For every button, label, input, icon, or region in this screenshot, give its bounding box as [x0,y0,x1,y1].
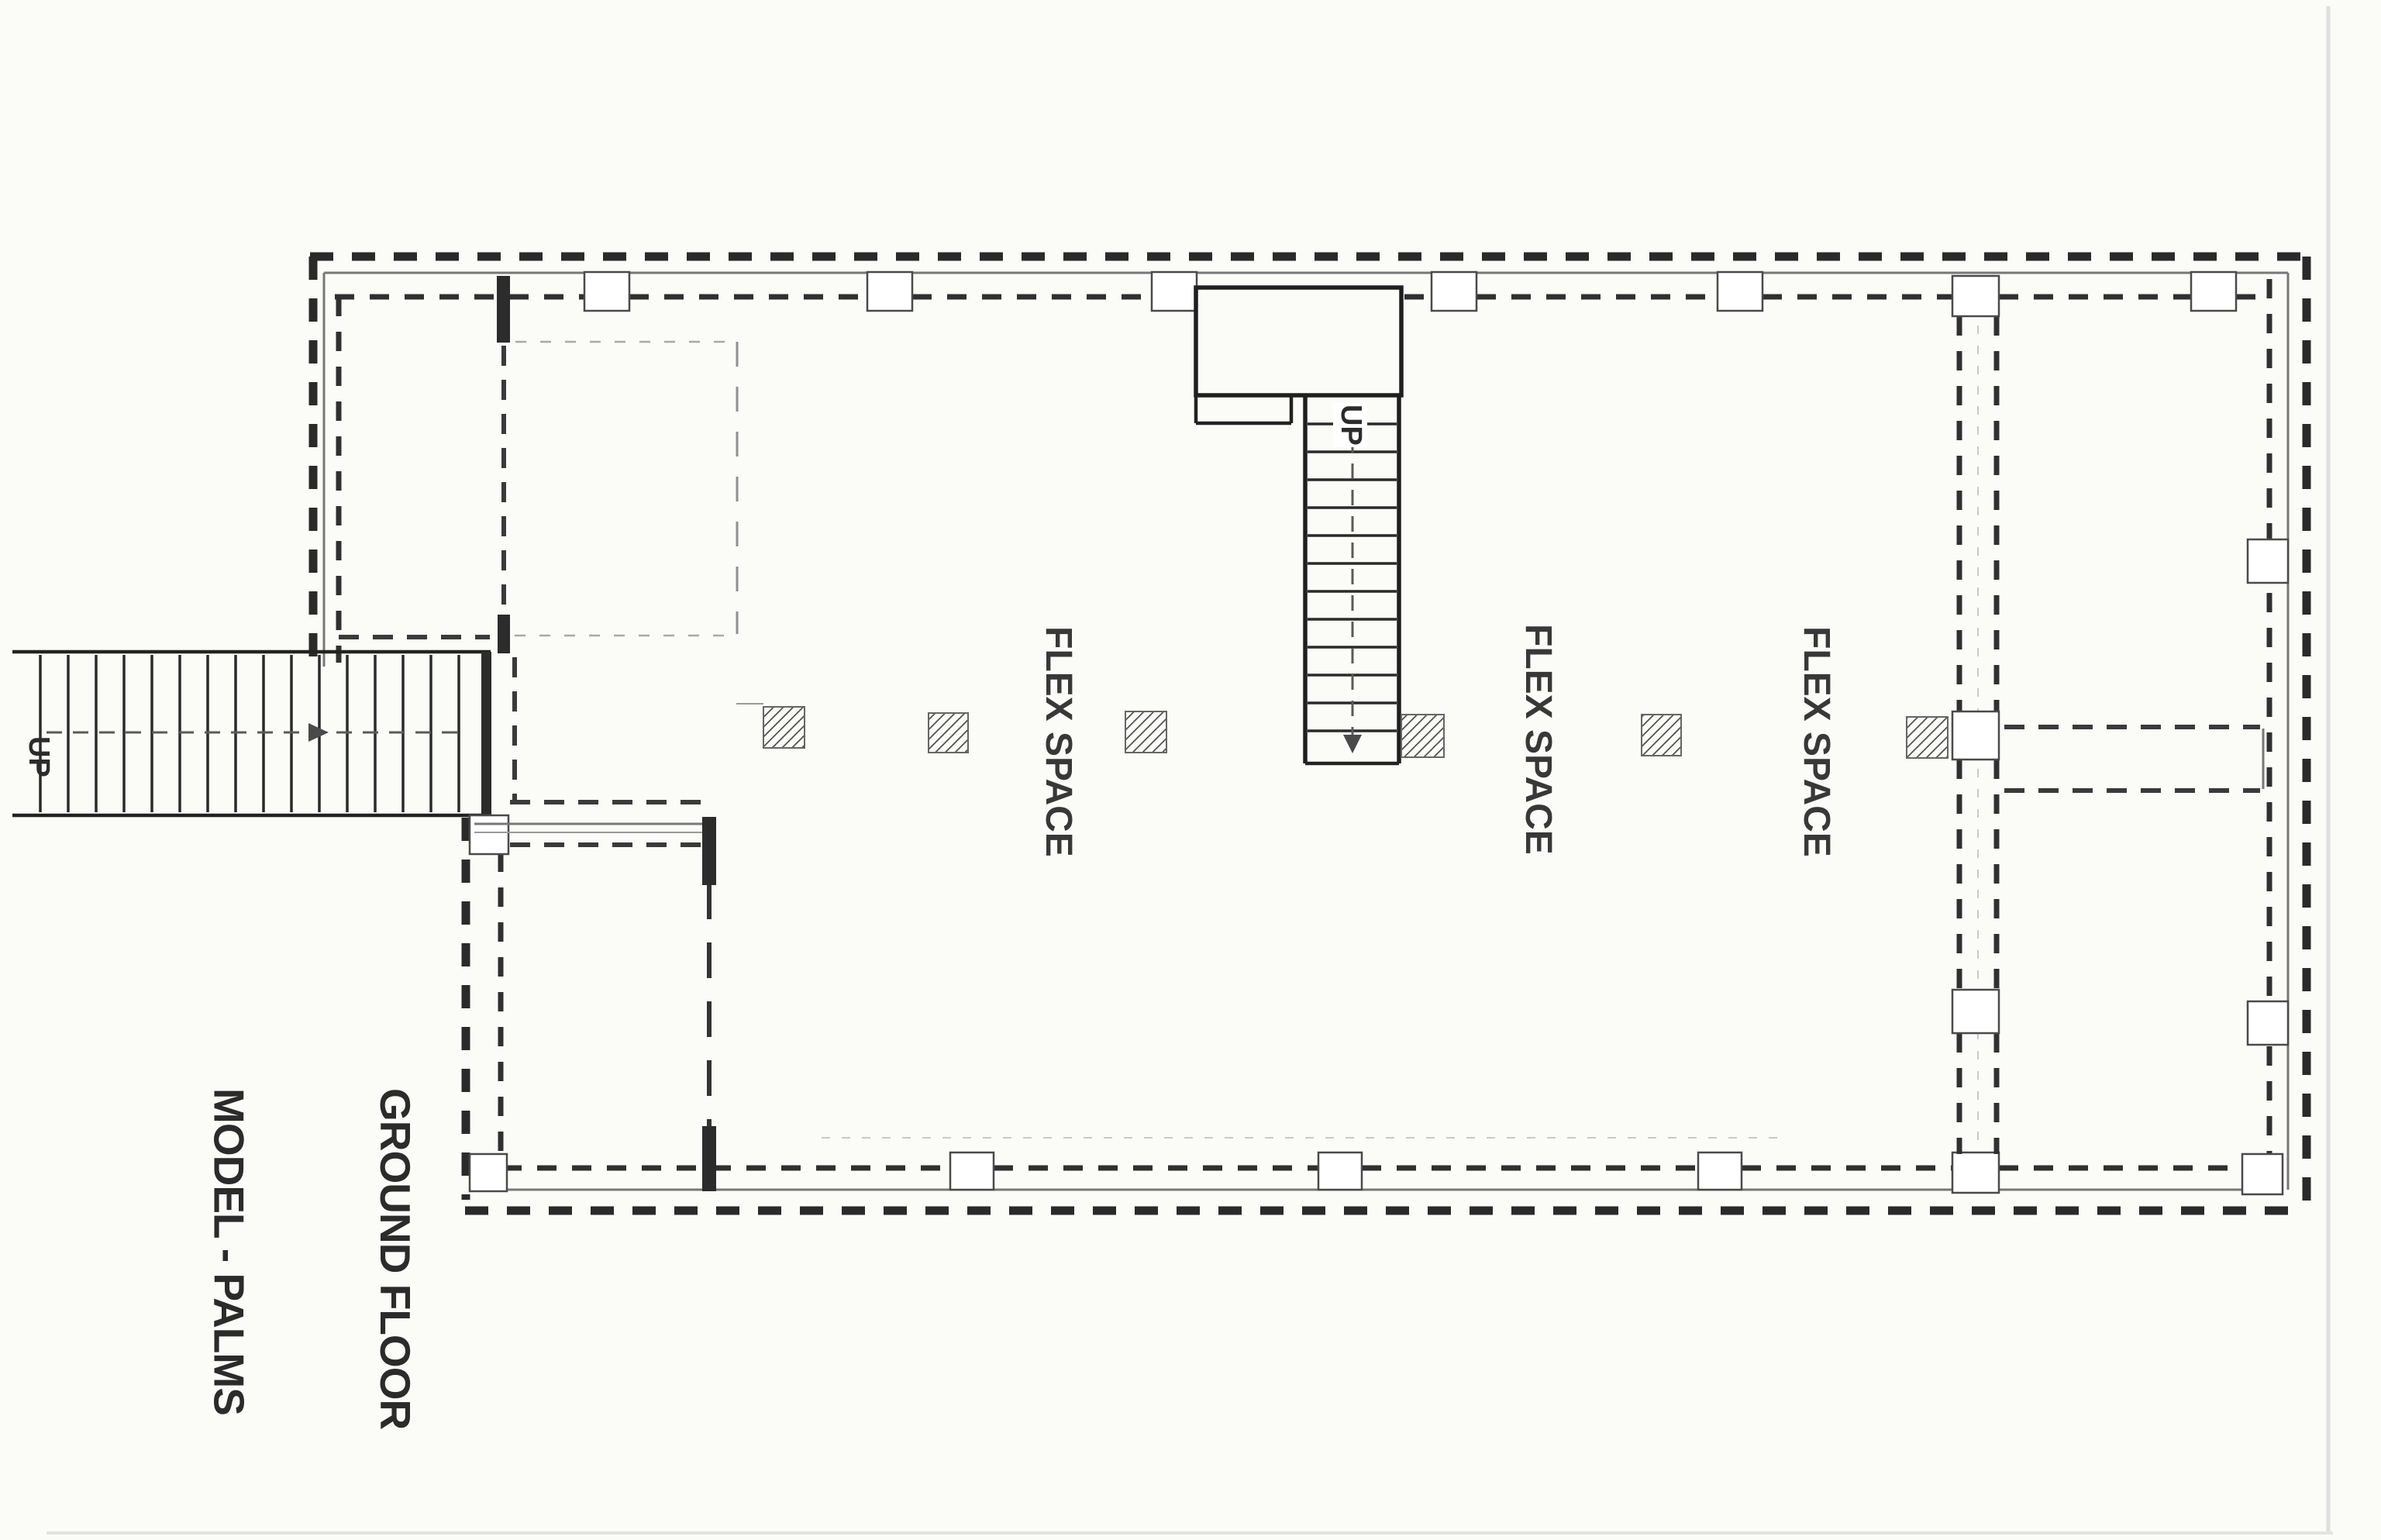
right-wing-corridor [2004,727,2263,791]
hatched-column-marker [1125,711,1166,753]
hatched-column-marker [1907,717,1948,758]
overhead-room-faint-outline [515,342,737,636]
wall-pilaster [702,817,716,885]
stair-direction-arrow [1343,735,1362,753]
flex-space-label-2: FLEX SPACE [1517,624,1559,855]
window-marker [2191,272,2236,311]
window-marker [1432,272,1476,311]
column-box [1952,990,1999,1033]
flex-space-label-3: FLEX SPACE [1795,626,1838,857]
wall-pilaster [497,276,510,343]
flex-space-label-1: FLEX SPACE [1037,626,1080,857]
exterior-stair-up-label: UP [22,736,54,777]
plan-title-line-2: GROUND FLOOR [367,1088,423,1429]
stair-landing-step [1196,395,1291,423]
hatched-column-marker [1642,715,1681,756]
title-block: MODEL - PALMS GROUND FLOOR [90,1088,533,1429]
right-wing-partition-wall [1952,276,1999,1154]
door-opening-marker [470,815,508,854]
window-marker [584,272,629,311]
wall-pilaster [702,1126,716,1191]
bottom-wall [465,1152,2288,1211]
hatched-column-marker [763,707,805,748]
window-marker [1152,272,1197,311]
wall-pilaster [498,615,510,653]
left-wall-upper [313,257,339,668]
column-box [950,1152,994,1190]
column-box [1952,711,1999,760]
window-marker [867,272,912,311]
plan-title-line-1: MODEL - PALMS [201,1088,257,1429]
interior-stair-up-label: UP [1333,403,1367,447]
interior-stair [1196,288,1401,763]
column-box [1952,1152,1999,1193]
column-box [1952,276,1999,316]
stair-end-wall [481,652,491,815]
column-box [2248,1001,2288,1045]
exterior-stair [12,652,491,815]
window-marker [1718,272,1762,311]
hatched-column-marker [929,713,968,753]
column-box [1318,1152,1362,1190]
scanned-floor-plan-page: MODEL - PALMS GROUND FLOOR FLEX SPACE FL… [0,0,2381,1540]
column-box [1698,1152,1742,1190]
hatched-column-marker [1401,715,1444,757]
stair-landing [1196,288,1401,395]
corner-column-box [2242,1154,2283,1194]
column-box [2248,539,2288,583]
right-wall [2248,257,2307,1211]
